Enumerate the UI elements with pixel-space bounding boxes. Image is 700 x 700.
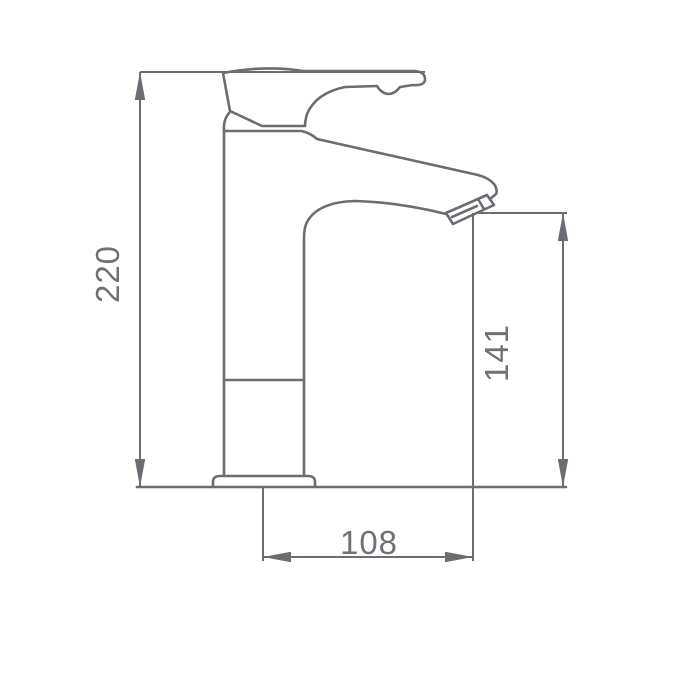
dimension-label-outlet-height: 141	[478, 324, 515, 382]
faucet-spout-top	[224, 131, 497, 199]
faucet-handle-lever	[223, 68, 425, 126]
arrowhead-down-icon	[558, 459, 568, 487]
arrowhead-right-icon	[445, 552, 473, 562]
faucet-cap-left-flare	[224, 112, 230, 131]
arrowhead-left-icon	[263, 552, 291, 562]
arrowhead-up-icon	[558, 213, 568, 241]
faucet-spout-underside	[304, 201, 446, 475]
drawing-canvas: 220 141 108	[0, 0, 700, 700]
faucet-outline	[137, 68, 566, 487]
dimension-label-overall-height: 220	[89, 245, 126, 303]
arrowhead-down-icon	[135, 459, 145, 487]
dimension-label-spout-reach: 108	[340, 524, 398, 561]
arrowhead-up-icon	[135, 72, 145, 100]
faucet-aerator-divider	[478, 199, 484, 209]
faucet-base	[213, 476, 315, 487]
technical-drawing: 220 141 108	[0, 0, 700, 700]
